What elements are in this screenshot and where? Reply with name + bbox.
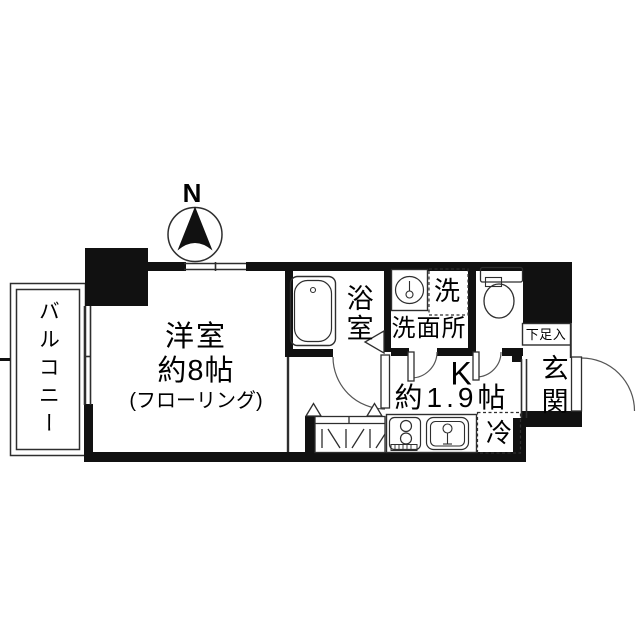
compass <box>168 207 222 262</box>
wall-pillar <box>85 248 148 306</box>
washroom-label: 洗面所 <box>392 316 467 342</box>
top-window <box>184 262 246 271</box>
balcony-divider <box>0 358 10 361</box>
toilet-icon <box>481 268 523 319</box>
toilet-door <box>473 352 501 380</box>
fridge-label: 冷 <box>486 419 512 447</box>
closet-box <box>315 417 385 453</box>
floor-plan: N バルコニー 洋室 約8帖 (フローリング) 浴室 洗 洗面所 下足入 玄関 … <box>0 0 640 640</box>
compass-north-label: N <box>183 179 202 207</box>
wall-under-bath <box>285 349 333 357</box>
wall-under-washroom-a <box>391 348 409 356</box>
wall-entrance-connector <box>513 418 526 462</box>
wall-bottom <box>84 452 526 462</box>
main-room-name: 洋室 <box>165 322 227 353</box>
wall-closet-left <box>305 416 315 453</box>
kitchen-counter <box>387 415 477 453</box>
washroom-door <box>408 352 437 381</box>
wall-corner-mass <box>523 262 572 323</box>
main-room-floor-note: (フローリング) <box>129 391 262 413</box>
bathtub-icon <box>291 277 336 346</box>
floor-plan-drawing <box>0 0 640 640</box>
closet <box>306 404 385 453</box>
washer-label: 洗 <box>434 277 460 305</box>
wall-kitchen-entrance-stub <box>512 348 522 362</box>
entrance-step-line <box>522 359 527 418</box>
main-room-label: 洋室 約8帖 (フローリング) <box>129 322 262 412</box>
main-room-door <box>333 355 390 409</box>
compass-needle-icon <box>178 207 213 251</box>
washbasin-icon <box>392 270 428 311</box>
bathroom-label: 浴室 <box>342 284 371 344</box>
closet-folding-door-right-icon <box>367 404 382 417</box>
wall-top-left <box>148 262 186 271</box>
kitchen-size-label: 約1.9帖 <box>395 383 510 413</box>
balcony-label: バルコニー <box>36 300 59 440</box>
main-room-size: 約8帖 <box>157 356 234 387</box>
closet-folding-door-left-icon <box>306 404 321 417</box>
wall-bath-washroom <box>384 264 391 352</box>
shoe-box-label: 下足入 <box>526 327 567 341</box>
entrance-label: 玄関 <box>537 354 566 420</box>
wall-washroom-toilet <box>468 264 476 354</box>
entrance-door <box>572 357 635 411</box>
balcony-window <box>84 306 91 405</box>
